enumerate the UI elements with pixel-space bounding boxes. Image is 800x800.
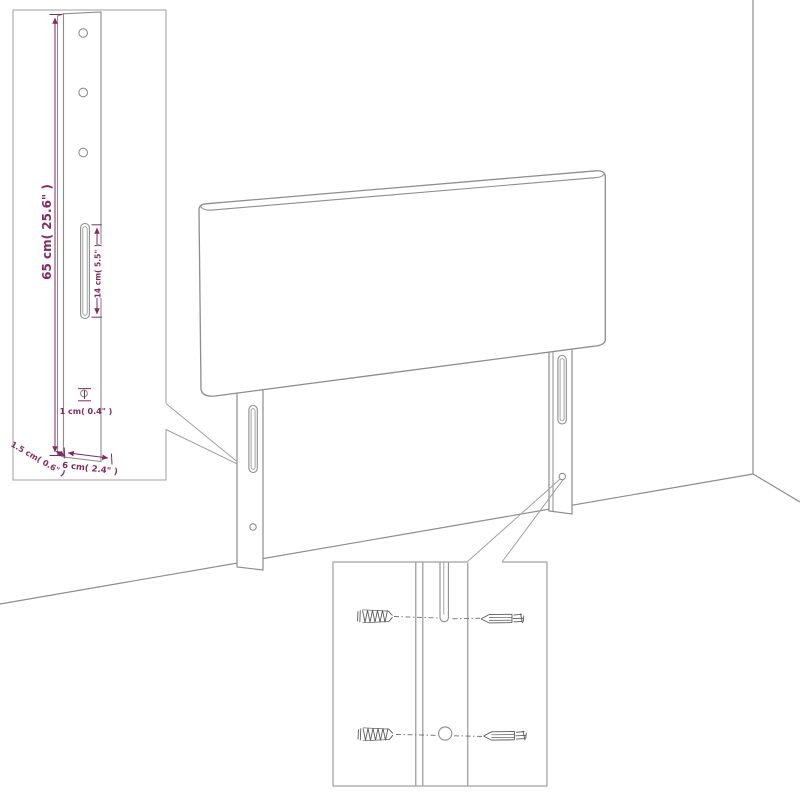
- inset-leg-side-face: [58, 14, 64, 457]
- floor-line-right: [753, 474, 800, 502]
- screw-icon-bottom: [484, 731, 527, 741]
- leader-line-bottom-right: [454, 736, 484, 737]
- inset-leg-hole-3: [79, 148, 88, 157]
- right-mounting-leg: [549, 341, 572, 514]
- left-leg-screw-hole: [250, 524, 256, 530]
- screw-icon-top: [481, 614, 524, 624]
- assembly-diagram-page: 65 cm( 25.6" ) 14 cm( 5.5" ) 1 cm( 0.4" …: [0, 0, 800, 800]
- floor-line-left: [0, 474, 753, 604]
- left-mounting-leg: [237, 383, 263, 570]
- inset-round-hole: [439, 727, 452, 740]
- slot-length-label: 14 cm( 5.5" ): [94, 244, 103, 299]
- leg-height-label: 65 cm( 25.6" ): [40, 184, 54, 280]
- inset-leg-hole-2: [79, 88, 88, 97]
- detail-inset-screw-mounting: [333, 562, 547, 786]
- detail-inset-full-leg: 65 cm( 25.6" ) 14 cm( 5.5" ) 1 cm( 0.4" …: [9, 10, 166, 480]
- headboard-panel: [199, 171, 605, 396]
- leader-line-top-right: [453, 618, 481, 619]
- screw-thread-icon-bottom: [358, 728, 393, 741]
- leader-line-bottom-left: [396, 735, 437, 736]
- inset-leg-hole-1: [79, 29, 88, 38]
- headboard-dimension-diagram: 65 cm( 25.6" ) 14 cm( 5.5" ) 1 cm( 0.4" …: [0, 0, 800, 800]
- callout-lines-left-leg: [166, 404, 237, 464]
- screw-thread-icon-top: [358, 610, 393, 623]
- hole-diameter-label: 1 cm( 0.4" ): [60, 407, 113, 416]
- leg-width-label: 6 cm( 2.4" ): [62, 461, 119, 478]
